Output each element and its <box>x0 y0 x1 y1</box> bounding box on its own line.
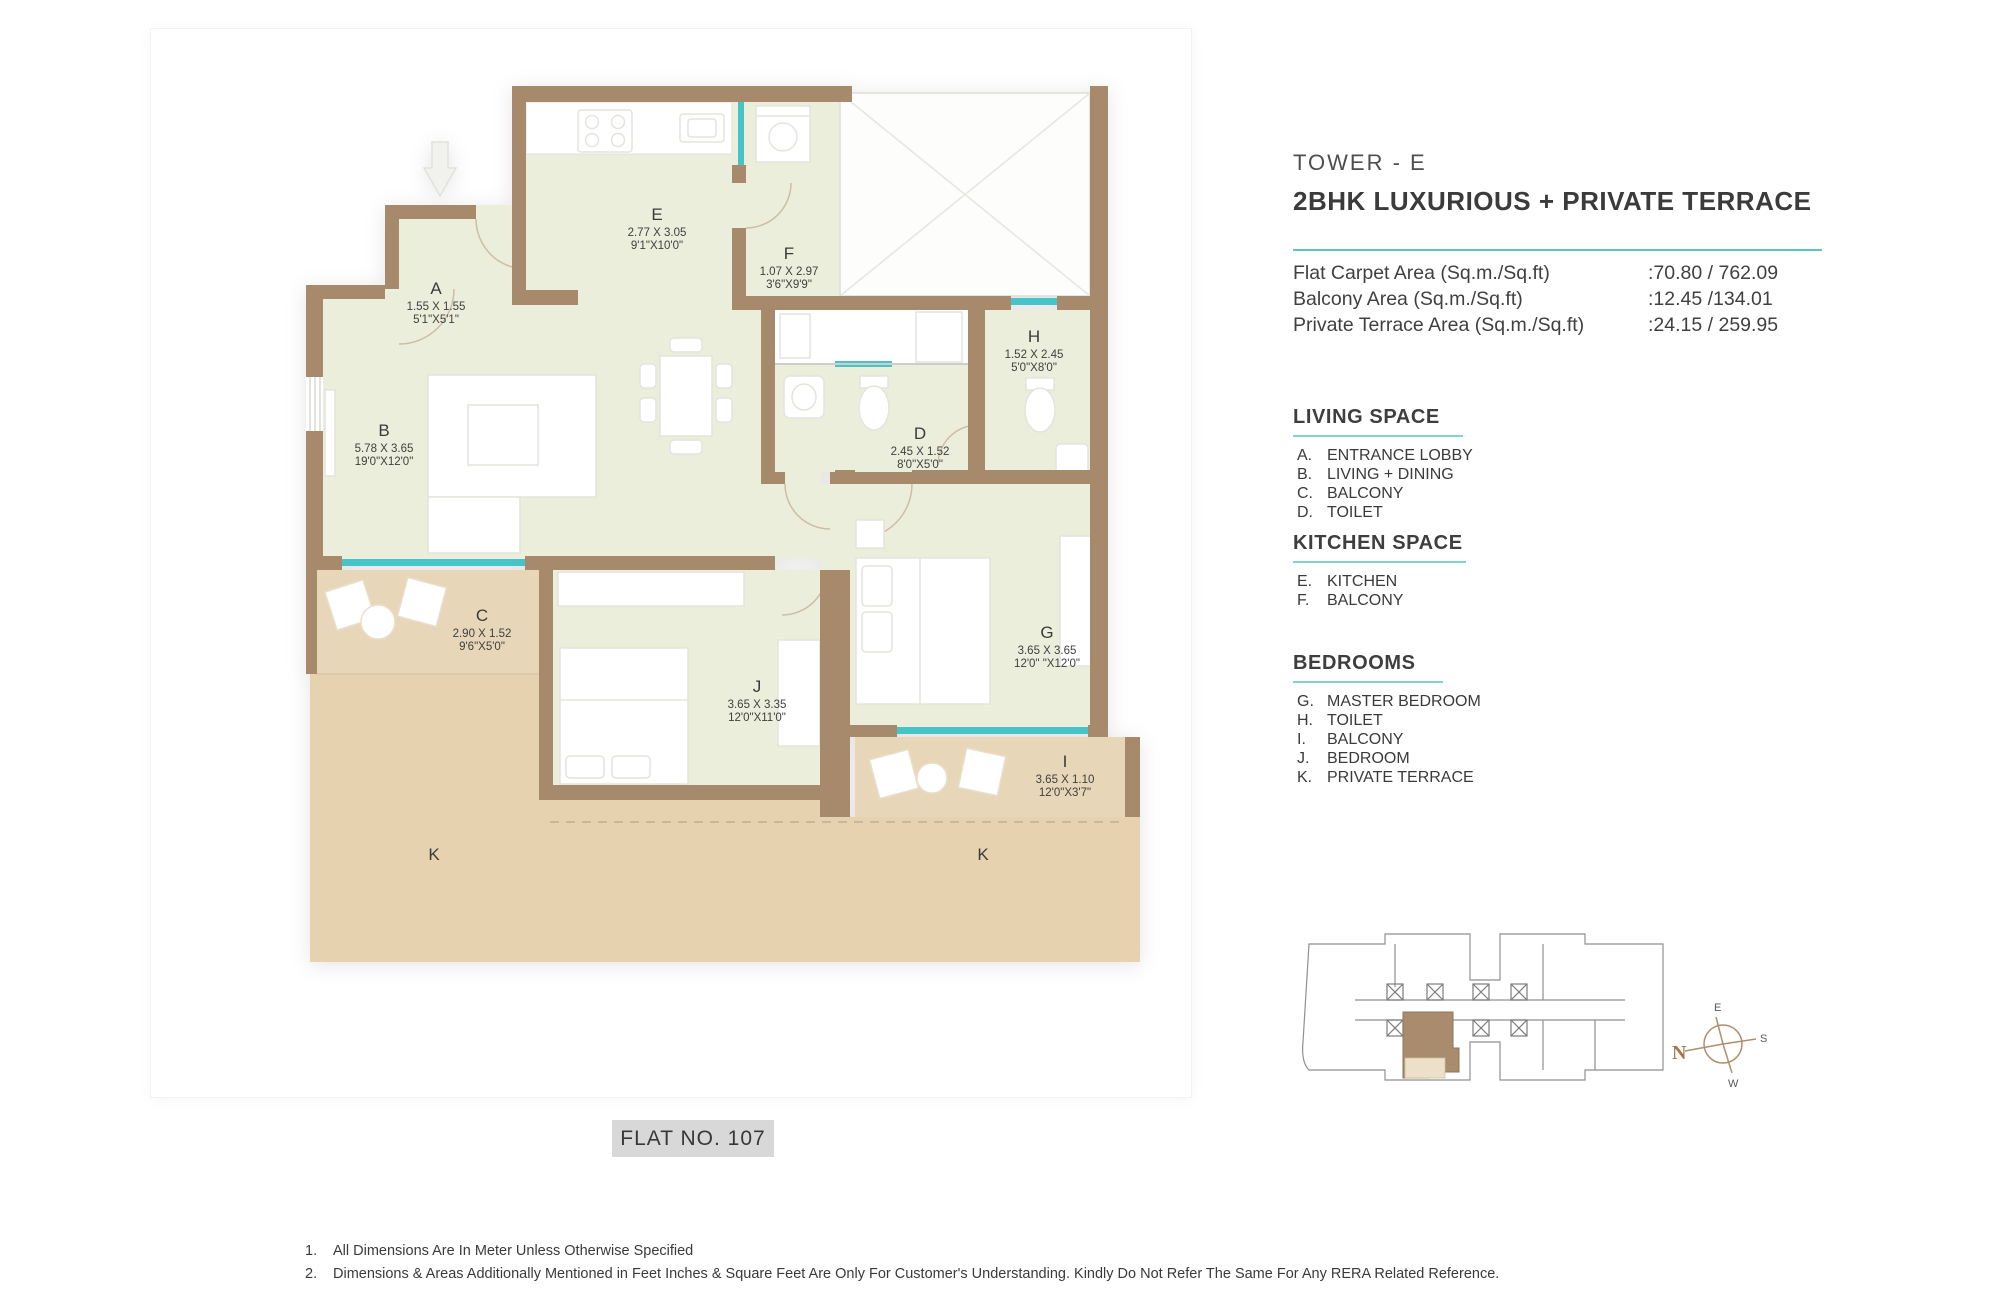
svg-text:3'6"X9'9": 3'6"X9'9" <box>766 279 812 291</box>
washbasin-icon <box>784 376 824 418</box>
toilet-icon <box>859 376 889 430</box>
svg-text:12'0" "X12'0": 12'0" "X12'0" <box>1014 658 1080 670</box>
svg-text:5.78 X 3.65: 5.78 X 3.65 <box>355 443 414 455</box>
svg-text:2.45 X 1.52: 2.45 X 1.52 <box>891 446 950 458</box>
svg-text:1.07 X 2.97: 1.07 X 2.97 <box>760 266 819 278</box>
svg-text:9'6"X5'0": 9'6"X5'0" <box>459 641 505 653</box>
legend-item: F.BALCONY <box>1293 591 1613 610</box>
legend-underline <box>1293 561 1466 563</box>
table-icon <box>361 605 395 639</box>
svg-text:3.65 X 1.10: 3.65 X 1.10 <box>1036 774 1095 786</box>
legend-kitchen-space: KITCHEN SPACE E.KITCHEN F.BALCONY <box>1293 532 1613 610</box>
table-icon <box>917 763 947 793</box>
legend-underline <box>1293 681 1443 683</box>
legend-item: I.BALCONY <box>1293 730 1613 749</box>
room-label-G: G <box>1040 623 1053 642</box>
stove-icon <box>578 110 632 152</box>
window-left-wall <box>306 377 323 431</box>
area-row-terrace: Private Terrace Area (Sq.m./Sq.ft) :24.1… <box>1293 312 1853 338</box>
highlighted-unit <box>1403 1012 1459 1078</box>
compass-w: W <box>1728 1078 1739 1090</box>
area-row-balcony: Balcony Area (Sq.m./Sq.ft) :12.45 /134.0… <box>1293 286 1853 312</box>
legend-bedrooms: BEDROOMS G.MASTER BEDROOM H.TOILET I.BAL… <box>1293 652 1613 787</box>
svg-text:1.55 X 1.55: 1.55 X 1.55 <box>407 301 466 313</box>
entry-arrow-icon <box>424 142 456 196</box>
compass-icon: E S W N <box>1672 995 1782 1095</box>
compass-e: E <box>1714 1002 1721 1014</box>
legend-item: C.BALCONY <box>1293 484 1613 503</box>
compass-s: S <box>1760 1033 1767 1045</box>
chair-icon <box>958 748 1005 795</box>
legend-item: A.ENTRANCE LOBBY <box>1293 446 1613 465</box>
svg-text:2.90 X 1.52: 2.90 X 1.52 <box>453 628 512 640</box>
floorplan-drawing: A 1.55 X 1.55 5'1"X5'1" B 5.78 X 3.65 19… <box>280 60 1160 1080</box>
terrace-label-K-left: K <box>428 845 440 864</box>
title-underline <box>1293 249 1822 251</box>
sink-icon <box>680 114 724 142</box>
legend-living-space: LIVING SPACE A.ENTRANCE LOBBY B.LIVING +… <box>1293 406 1613 522</box>
legend-item: H.TOILET <box>1293 711 1613 730</box>
legend-item: B.LIVING + DINING <box>1293 465 1613 484</box>
legend-underline <box>1293 435 1463 437</box>
site-key-map <box>1295 922 1675 1102</box>
svg-text:8'0"X5'0": 8'0"X5'0" <box>897 459 943 471</box>
washing-machine-icon <box>756 106 810 162</box>
svg-text:19'0"X12'0": 19'0"X12'0" <box>355 456 414 468</box>
room-label-I: I <box>1063 752 1068 771</box>
svg-text:12'0"X11'0": 12'0"X11'0" <box>728 712 786 724</box>
svg-text:2.77 X 3.05: 2.77 X 3.05 <box>628 227 687 239</box>
room-label-H: H <box>1028 327 1040 346</box>
svg-text:5'1"X5'1": 5'1"X5'1" <box>413 314 459 326</box>
room-label-D: D <box>914 424 926 443</box>
tv-unit <box>325 390 335 476</box>
area-table: Flat Carpet Area (Sq.m./Sq.ft) :70.80 / … <box>1293 260 1853 338</box>
room-label-C: C <box>476 606 488 625</box>
flat-number-badge: FLAT NO. 107 <box>612 1120 774 1157</box>
legend-item: D.TOILET <box>1293 503 1613 522</box>
legend-item: G.MASTER BEDROOM <box>1293 692 1613 711</box>
compass-n: N <box>1672 1042 1687 1064</box>
duct <box>916 312 962 362</box>
svg-text:1.52 X 2.45: 1.52 X 2.45 <box>1005 349 1064 361</box>
area-row-carpet: Flat Carpet Area (Sq.m./Sq.ft) :70.80 / … <box>1293 260 1853 286</box>
svg-text:5'0"X8'0": 5'0"X8'0" <box>1011 362 1057 374</box>
tower-label: TOWER - E <box>1293 150 1427 176</box>
room-label-F: F <box>784 244 794 263</box>
footnote-1: 1.All Dimensions Are In Meter Unless Oth… <box>305 1240 1605 1263</box>
svg-text:3.65 X 3.35: 3.65 X 3.35 <box>728 699 787 711</box>
room-label-A: A <box>430 279 442 298</box>
room-label-B: B <box>378 421 389 440</box>
legend-item: E.KITCHEN <box>1293 572 1613 591</box>
svg-text:9'1"X10'0": 9'1"X10'0" <box>631 240 683 252</box>
legend-item: J.BEDROOM <box>1293 749 1613 768</box>
toilet-icon <box>1025 378 1055 432</box>
svg-text:3.65 X 3.65: 3.65 X 3.65 <box>1018 645 1077 657</box>
legend-item: K.PRIVATE TERRACE <box>1293 768 1613 787</box>
open-terrace-x <box>840 93 1090 296</box>
terrace-label-K-right: K <box>977 845 989 864</box>
room-label-E: E <box>651 205 662 224</box>
duct <box>780 314 810 358</box>
room-label-J: J <box>753 677 762 696</box>
footnote-2: 2.Dimensions & Areas Additionally Mentio… <box>305 1263 1605 1286</box>
svg-text:12'0"X3'7": 12'0"X3'7" <box>1039 787 1091 799</box>
page-title: 2BHK LUXURIOUS + PRIVATE TERRACE <box>1293 186 1811 217</box>
footnotes: 1.All Dimensions Are In Meter Unless Oth… <box>305 1240 1605 1286</box>
